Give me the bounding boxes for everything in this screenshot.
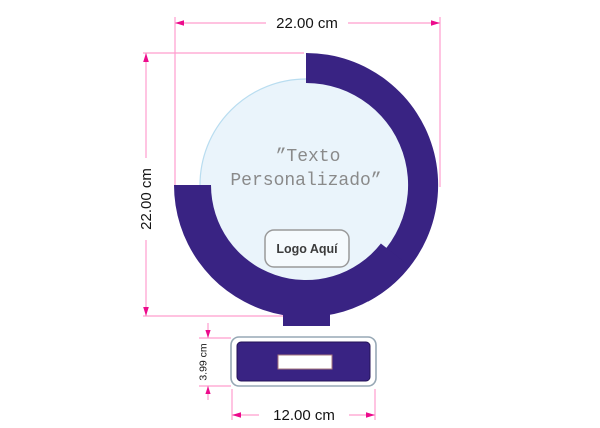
stem (283, 298, 330, 326)
height-dim-arrow-bottom (143, 307, 149, 316)
trophy-drawing: ”Texto Personalizado” Logo Aquí 22.00 cm… (0, 0, 600, 428)
width-dim-label: 22.00 cm (276, 15, 338, 32)
height-dimension: 22.00 cm (138, 53, 155, 316)
base-height-label: 3.99 cm (198, 343, 210, 381)
base-width-arrow-right (366, 412, 375, 418)
base-width-dimension: 12.00 cm (232, 389, 375, 424)
width-dim-arrow-left (175, 20, 184, 26)
width-dim-arrow-right (431, 20, 440, 26)
height-dim-arrow-top (143, 53, 149, 62)
trophy-spec-canvas: ”Texto Personalizado” Logo Aquí 22.00 cm… (0, 0, 600, 428)
logo-placeholder-label: Logo Aquí (276, 242, 338, 256)
logo-placeholder: Logo Aquí (265, 230, 349, 267)
base-width-arrow-left (232, 412, 241, 418)
height-dim-label: 22.00 cm (138, 168, 155, 230)
custom-text-line1: ”Texto (276, 147, 341, 167)
base-slot (278, 355, 332, 369)
base-height-dimension: 3.99 cm (198, 323, 232, 400)
base (231, 337, 376, 386)
custom-text-line2: Personalizado” (230, 171, 381, 191)
base-height-arrow-bottom (205, 386, 210, 394)
base-height-arrow-top (205, 330, 210, 338)
base-width-label: 12.00 cm (273, 407, 335, 424)
width-dimension: 22.00 cm (175, 15, 440, 32)
